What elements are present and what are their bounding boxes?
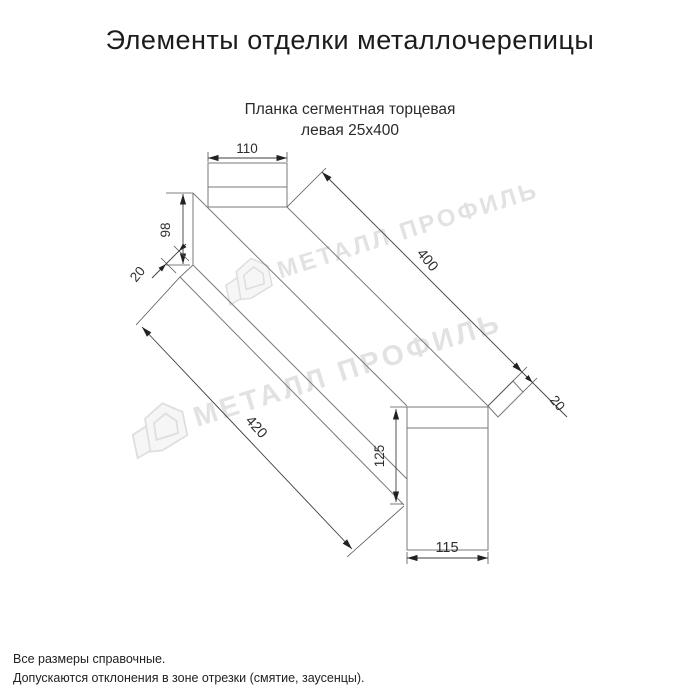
product-name-line1: Планка сегментная торцевая bbox=[245, 101, 456, 118]
footer-note-line2: Допускаются отклонения в зоне отрезки (с… bbox=[13, 671, 365, 685]
watermark-text-upper: МЕТАЛЛ ПРОФИЛЬ bbox=[274, 177, 542, 285]
dim-label-400: 400 bbox=[413, 246, 441, 275]
top-flange-face bbox=[208, 163, 287, 207]
watermark-band-lower: МЕТАЛЛ ПРОФИЛЬ bbox=[124, 299, 507, 458]
dim-label-125: 125 bbox=[372, 445, 387, 468]
watermark-text-lower: МЕТАЛЛ ПРОФИЛЬ bbox=[190, 307, 506, 434]
drawing-page: МЕТАЛЛ ПРОФИЛЬ МЕТАЛЛ ПРОФИЛЬ Элементы о… bbox=[0, 0, 700, 700]
metal-profil-logo-icon bbox=[124, 398, 192, 458]
dim-label-110: 110 bbox=[236, 141, 258, 156]
page-title: Элементы отделки металлочерепицы bbox=[106, 25, 595, 55]
footer-note-line1: Все размеры справочные. bbox=[13, 652, 165, 666]
dim-end-height: 125 bbox=[372, 407, 407, 504]
watermark-band-upper: МЕТАЛЛ ПРОФИЛЬ bbox=[219, 170, 544, 305]
dim-label-98: 98 bbox=[158, 222, 173, 237]
dim-label-20-left: 20 bbox=[127, 264, 148, 285]
dim-label-20-right: 20 bbox=[547, 393, 568, 414]
end-hem-fold bbox=[488, 381, 523, 417]
technical-drawing-canvas: МЕТАЛЛ ПРОФИЛЬ МЕТАЛЛ ПРОФИЛЬ Элементы о… bbox=[0, 0, 700, 700]
dim-label-115: 115 bbox=[435, 540, 458, 556]
footer-notes: Все размеры справочные. Допускаются откл… bbox=[13, 652, 365, 685]
metal-profil-logo-icon bbox=[219, 254, 276, 305]
dim-top-flange-width: 110 bbox=[208, 141, 287, 162]
dim-left-hem: 20 bbox=[127, 244, 189, 285]
product-name-line2: левая 25х400 bbox=[301, 122, 399, 139]
dim-right-hem: 20 bbox=[522, 372, 568, 417]
dim-end-width: 115 bbox=[407, 540, 488, 564]
